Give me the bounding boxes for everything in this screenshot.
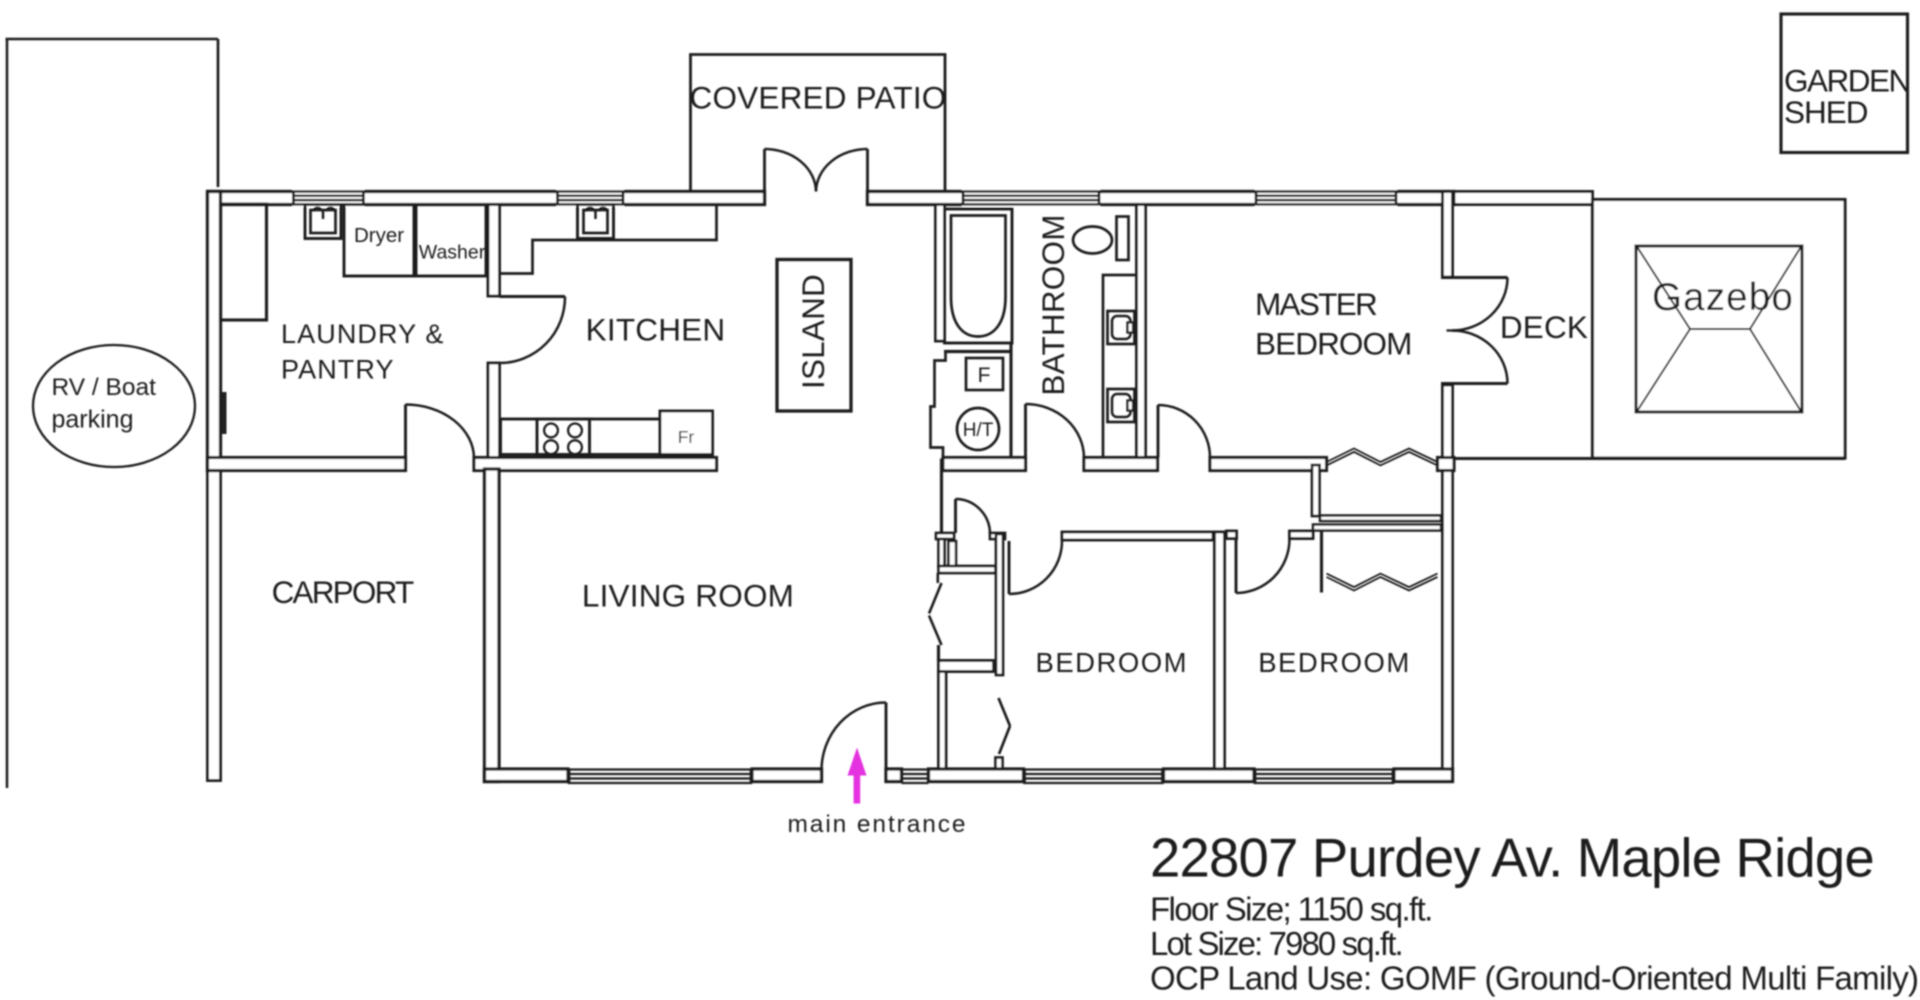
- svg-text:main entrance: main entrance: [788, 811, 968, 838]
- svg-text:OCP Land Use: GOMF (Ground-Ori: OCP Land Use: GOMF (Ground-Oriented Mult…: [1150, 960, 1918, 997]
- svg-text:ISLAND: ISLAND: [795, 274, 831, 389]
- svg-text:MASTER: MASTER: [1255, 286, 1377, 322]
- svg-text:Gazebo: Gazebo: [1652, 276, 1794, 319]
- svg-text:Dryer: Dryer: [354, 224, 404, 247]
- svg-text:F: F: [978, 364, 991, 387]
- svg-text:BEDROOM: BEDROOM: [1036, 647, 1189, 678]
- svg-text:PANTRY: PANTRY: [281, 355, 395, 385]
- svg-text:RV / Boat: RV / Boat: [52, 374, 157, 401]
- svg-text:22807 Purdey Av. Maple Ridge: 22807 Purdey Av. Maple Ridge: [1150, 828, 1874, 889]
- svg-text:Washer: Washer: [419, 242, 486, 264]
- svg-text:KITCHEN: KITCHEN: [586, 312, 726, 348]
- svg-text:LIVING ROOM: LIVING ROOM: [582, 578, 794, 614]
- svg-text:COVERED PATIO: COVERED PATIO: [690, 80, 947, 116]
- svg-text:BEDROOM: BEDROOM: [1258, 647, 1411, 678]
- svg-text:CARPORT: CARPORT: [272, 574, 414, 610]
- svg-text:SHED: SHED: [1784, 94, 1868, 130]
- svg-text:BEDROOM: BEDROOM: [1255, 326, 1411, 362]
- svg-text:Fr: Fr: [678, 427, 695, 447]
- svg-text:H/T: H/T: [963, 420, 994, 441]
- svg-text:LAUNDRY &: LAUNDRY &: [281, 319, 444, 349]
- svg-text:DECK: DECK: [1500, 309, 1588, 345]
- svg-text:Floor Size; 1150 sq.ft.: Floor Size; 1150 sq.ft.: [1150, 891, 1432, 928]
- svg-text:BATHROOM: BATHROOM: [1035, 214, 1071, 395]
- svg-text:parking: parking: [52, 406, 134, 434]
- svg-text:Lot Size: 7980 sq.ft.: Lot Size: 7980 sq.ft.: [1150, 925, 1402, 962]
